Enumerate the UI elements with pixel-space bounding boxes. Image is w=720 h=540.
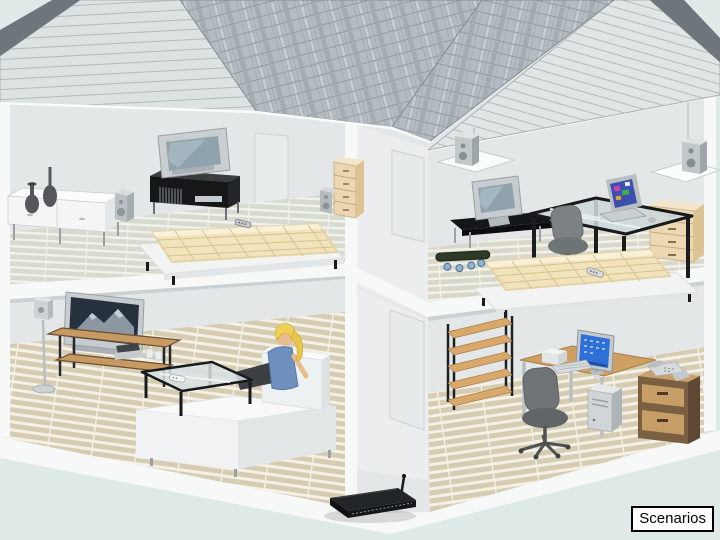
bed-leg (688, 294, 691, 302)
pc-tower (588, 384, 622, 432)
mouse (594, 375, 601, 380)
cut-wall-left (0, 100, 10, 437)
crt-tv (158, 128, 230, 178)
bed-leg (146, 262, 149, 271)
speaker (115, 189, 134, 222)
mouse (648, 217, 656, 223)
bed-leg (482, 298, 485, 306)
bed-leg (334, 260, 337, 269)
drawer-handle (657, 419, 668, 422)
center-wall-edge-lower (345, 285, 357, 508)
dresser (334, 157, 364, 218)
drawer-handle (27, 214, 33, 216)
drawer-handle (657, 392, 668, 395)
drawer-handle (79, 218, 85, 220)
chair-seat (522, 408, 568, 428)
door-center-wall-lower (390, 310, 424, 430)
chair-seat (548, 237, 588, 255)
speaker-base (33, 385, 55, 393)
dvd-player (195, 196, 222, 202)
chair-back (522, 366, 560, 413)
printer (542, 348, 567, 365)
caption-scenarios: Scenarios (631, 506, 714, 532)
door-center-wall-upper (392, 150, 424, 242)
home-scenario-illustration: Scenarios (0, 0, 720, 540)
house-cutaway-scene (0, 0, 720, 540)
bed-leg (172, 276, 175, 285)
